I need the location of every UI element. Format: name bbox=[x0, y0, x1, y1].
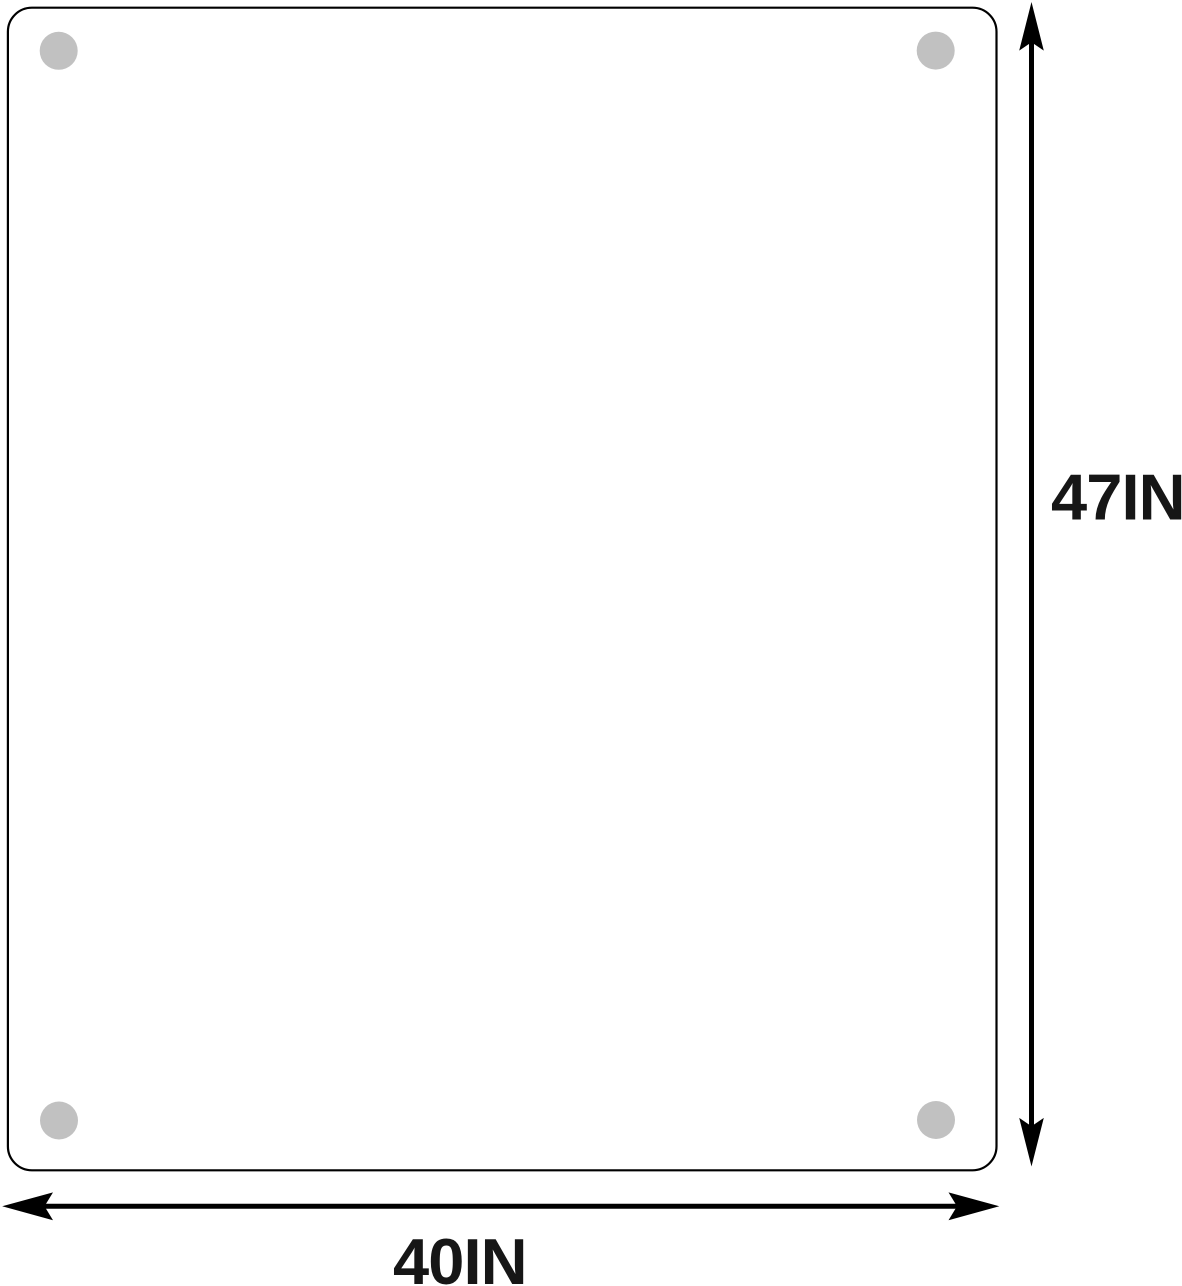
svg-text:47IN: 47IN bbox=[1051, 461, 1182, 534]
svg-text:40IN: 40IN bbox=[393, 1225, 527, 1286]
